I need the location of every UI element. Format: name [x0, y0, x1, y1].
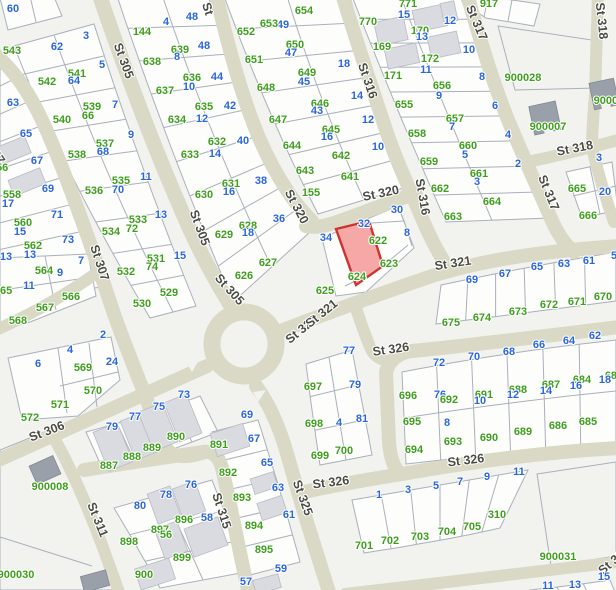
svg-text:73: 73 [62, 234, 74, 246]
svg-text:543: 543 [3, 45, 21, 57]
svg-text:38: 38 [255, 175, 267, 187]
svg-text:3: 3 [405, 484, 411, 496]
svg-text:642: 642 [332, 150, 350, 162]
svg-text:11: 11 [23, 280, 35, 292]
svg-text:13: 13 [155, 209, 167, 221]
svg-text:8: 8 [479, 71, 485, 83]
svg-text:30: 30 [391, 204, 403, 216]
svg-text:44: 44 [211, 71, 224, 83]
svg-text:705: 705 [463, 521, 481, 533]
svg-text:9: 9 [128, 129, 134, 141]
svg-text:12: 12 [444, 15, 456, 27]
svg-text:665: 665 [568, 183, 586, 195]
svg-text:692: 692 [440, 394, 458, 406]
svg-text:565: 565 [0, 285, 12, 297]
svg-text:8: 8 [404, 227, 410, 239]
svg-text:664: 664 [483, 196, 502, 208]
svg-text:15: 15 [398, 9, 410, 21]
svg-text:629: 629 [215, 229, 233, 241]
svg-text:15: 15 [174, 250, 186, 262]
svg-text:1: 1 [376, 489, 382, 501]
svg-text:69: 69 [241, 409, 253, 421]
svg-text:34: 34 [320, 232, 333, 244]
svg-text:641: 641 [341, 171, 359, 183]
svg-text:702: 702 [381, 535, 399, 547]
svg-text:18: 18 [242, 227, 254, 239]
svg-text:68: 68 [97, 146, 109, 158]
svg-text:13: 13 [24, 249, 36, 261]
svg-text:898: 898 [120, 536, 138, 548]
svg-text:5: 5 [99, 59, 105, 71]
svg-text:701: 701 [355, 540, 373, 552]
svg-text:7: 7 [449, 121, 455, 133]
svg-text:36: 36 [273, 213, 285, 225]
svg-text:889: 889 [143, 442, 161, 454]
svg-text:61: 61 [283, 509, 295, 521]
svg-text:633: 633 [181, 149, 199, 161]
svg-text:72: 72 [126, 223, 138, 235]
svg-text:674: 674 [473, 312, 492, 324]
svg-text:7: 7 [457, 476, 463, 488]
svg-text:2: 2 [100, 329, 106, 341]
svg-text:144: 144 [133, 26, 152, 38]
svg-text:8: 8 [444, 417, 450, 429]
svg-text:48: 48 [198, 40, 210, 52]
svg-text:638: 638 [143, 56, 161, 68]
svg-text:644: 644 [283, 140, 302, 152]
svg-text:622: 622 [369, 235, 387, 247]
svg-text:18: 18 [338, 58, 350, 70]
svg-text:690: 690 [480, 432, 498, 444]
svg-text:529: 529 [160, 287, 178, 299]
svg-text:67: 67 [499, 268, 511, 280]
svg-text:60: 60 [7, 3, 19, 15]
svg-text:32: 32 [358, 218, 370, 230]
svg-text:75: 75 [153, 401, 165, 413]
svg-text:10: 10 [474, 395, 486, 407]
svg-text:6: 6 [492, 100, 498, 112]
svg-text:73: 73 [178, 389, 190, 401]
svg-text:648: 648 [257, 82, 275, 94]
svg-text:675: 675 [442, 317, 460, 329]
svg-text:66: 66 [82, 110, 94, 122]
svg-text:13: 13 [0, 251, 12, 263]
svg-text:662: 662 [431, 183, 449, 195]
svg-text:556: 556 [0, 162, 8, 174]
svg-text:673: 673 [509, 306, 527, 318]
svg-text:693: 693 [444, 436, 462, 448]
svg-text:890: 890 [167, 431, 185, 443]
svg-text:63: 63 [558, 258, 570, 270]
svg-text:900028: 900028 [505, 72, 542, 84]
svg-text:896: 896 [175, 514, 193, 526]
svg-text:685: 685 [579, 416, 597, 428]
svg-text:670: 670 [594, 291, 612, 303]
svg-text:700: 700 [335, 445, 353, 457]
svg-text:3: 3 [83, 30, 89, 42]
svg-text:697: 697 [304, 381, 322, 393]
svg-text:567: 567 [36, 302, 54, 314]
svg-text:569: 569 [74, 362, 92, 374]
svg-text:70: 70 [468, 351, 480, 363]
svg-text:900030: 900030 [0, 569, 34, 581]
svg-text:634: 634 [168, 114, 187, 126]
svg-text:11: 11 [420, 64, 432, 76]
svg-text:624: 624 [348, 271, 367, 283]
svg-text:13: 13 [569, 579, 581, 590]
svg-text:3: 3 [596, 152, 602, 164]
svg-text:13: 13 [416, 31, 428, 43]
svg-text:623: 623 [380, 258, 398, 270]
svg-text:171: 171 [384, 70, 402, 82]
svg-text:155: 155 [302, 187, 320, 199]
svg-text:540: 540 [53, 114, 71, 126]
svg-text:81: 81 [356, 413, 368, 425]
svg-text:887: 887 [100, 460, 118, 472]
svg-text:66: 66 [533, 339, 545, 351]
svg-text:310: 310 [488, 509, 506, 521]
svg-text:625: 625 [316, 285, 334, 297]
svg-text:72: 72 [433, 357, 445, 369]
svg-text:16: 16 [223, 186, 235, 198]
svg-text:59: 59 [275, 563, 287, 575]
svg-text:627: 627 [259, 257, 277, 269]
svg-text:63: 63 [7, 97, 19, 109]
svg-text:686: 686 [549, 420, 567, 432]
svg-text:7: 7 [112, 99, 118, 111]
svg-text:64: 64 [563, 335, 576, 347]
svg-text:653: 653 [260, 18, 278, 30]
svg-text:572: 572 [21, 412, 39, 424]
svg-text:77: 77 [343, 345, 355, 357]
svg-text:62: 62 [51, 41, 63, 53]
svg-text:899: 899 [173, 552, 191, 564]
svg-text:24: 24 [106, 356, 119, 368]
svg-text:12: 12 [507, 389, 519, 401]
svg-text:71: 71 [51, 209, 63, 221]
svg-text:534: 534 [102, 226, 121, 238]
svg-text:20: 20 [599, 186, 611, 198]
svg-text:17: 17 [2, 198, 14, 210]
svg-text:900: 900 [135, 569, 153, 581]
svg-text:11: 11 [140, 171, 152, 183]
svg-text:58: 58 [201, 512, 213, 524]
svg-text:672: 672 [540, 299, 558, 311]
svg-text:74: 74 [146, 261, 159, 273]
svg-text:45: 45 [298, 76, 310, 88]
svg-text:694: 694 [405, 444, 424, 456]
svg-text:917: 917 [480, 0, 498, 10]
svg-text:770: 770 [359, 16, 377, 28]
svg-text:70: 70 [112, 184, 124, 196]
svg-text:4: 4 [163, 16, 170, 28]
svg-text:10: 10 [463, 44, 475, 56]
svg-text:637: 637 [156, 85, 174, 97]
svg-text:564: 564 [35, 265, 54, 277]
svg-text:632: 632 [208, 136, 226, 148]
svg-text:65: 65 [261, 457, 273, 469]
svg-text:900007: 900007 [530, 121, 567, 133]
svg-text:704: 704 [438, 526, 457, 538]
svg-text:4: 4 [505, 129, 512, 141]
svg-text:43: 43 [311, 105, 323, 117]
svg-text:695: 695 [403, 416, 421, 428]
svg-text:67: 67 [31, 155, 43, 167]
svg-text:10: 10 [372, 141, 384, 153]
svg-text:3: 3 [474, 176, 480, 188]
svg-text:12: 12 [196, 113, 208, 125]
svg-text:79: 79 [106, 421, 118, 433]
svg-text:76: 76 [185, 479, 197, 491]
svg-text:4: 4 [336, 417, 343, 429]
svg-text:69: 69 [42, 183, 54, 195]
svg-text:542: 542 [38, 76, 56, 88]
svg-text:659: 659 [420, 156, 438, 168]
svg-text:895: 895 [255, 544, 273, 556]
svg-text:48: 48 [186, 11, 198, 23]
svg-text:8: 8 [174, 51, 180, 63]
svg-text:9: 9 [436, 90, 442, 102]
svg-text:67: 67 [248, 433, 260, 445]
svg-text:5: 5 [462, 149, 468, 161]
svg-text:65: 65 [531, 261, 543, 273]
svg-text:62: 62 [589, 330, 601, 342]
svg-text:78: 78 [160, 489, 172, 501]
svg-text:891: 891 [210, 439, 228, 451]
svg-text:630: 630 [195, 189, 213, 201]
svg-text:61: 61 [583, 255, 595, 267]
svg-text:15: 15 [598, 571, 610, 583]
svg-text:14: 14 [540, 385, 553, 397]
svg-text:647: 647 [269, 114, 287, 126]
svg-text:16: 16 [570, 380, 582, 392]
svg-text:80: 80 [134, 500, 146, 512]
svg-text:7: 7 [78, 255, 84, 267]
svg-text:703: 703 [411, 531, 429, 543]
svg-text:699: 699 [311, 450, 329, 462]
svg-text:570: 570 [84, 385, 102, 397]
svg-text:5: 5 [433, 480, 439, 492]
svg-text:9: 9 [57, 267, 63, 279]
svg-text:900031: 900031 [540, 551, 577, 563]
svg-text:530: 530 [133, 298, 151, 310]
svg-text:571: 571 [51, 399, 69, 411]
svg-text:635: 635 [195, 101, 213, 113]
svg-text:11: 11 [513, 466, 525, 478]
svg-text:6: 6 [35, 358, 41, 370]
svg-text:900008: 900008 [32, 481, 69, 493]
svg-text:169: 169 [373, 41, 391, 53]
svg-text:10: 10 [183, 81, 195, 93]
svg-text:15: 15 [14, 226, 26, 238]
svg-text:57: 57 [240, 576, 252, 588]
svg-text:18: 18 [599, 374, 611, 386]
svg-text:56: 56 [160, 529, 172, 541]
svg-text:65: 65 [20, 128, 32, 140]
svg-text:77: 77 [129, 411, 141, 423]
svg-text:643: 643 [296, 165, 314, 177]
svg-text:42: 42 [224, 100, 236, 112]
svg-text:47: 47 [285, 47, 297, 59]
svg-text:532: 532 [117, 266, 135, 278]
svg-text:49: 49 [277, 19, 289, 31]
svg-text:654: 654 [295, 5, 314, 17]
svg-text:4: 4 [67, 344, 74, 356]
svg-text:14: 14 [209, 148, 222, 160]
svg-text:671: 671 [568, 296, 586, 308]
svg-text:655: 655 [395, 99, 413, 111]
svg-text:652: 652 [237, 26, 255, 38]
svg-text:5: 5 [611, 250, 616, 262]
svg-text:2: 2 [515, 158, 521, 170]
svg-text:888: 888 [123, 451, 141, 463]
svg-text:900003: 900003 [594, 95, 616, 107]
svg-text:64: 64 [68, 75, 81, 87]
svg-text:16: 16 [321, 131, 333, 143]
svg-text:651: 651 [245, 54, 263, 66]
svg-text:538: 538 [68, 149, 86, 161]
svg-text:69: 69 [466, 274, 478, 286]
svg-text:566: 566 [62, 291, 80, 303]
svg-text:689: 689 [514, 426, 532, 438]
svg-text:536: 536 [85, 185, 103, 197]
svg-text:11: 11 [542, 580, 554, 590]
svg-text:79: 79 [349, 379, 361, 391]
svg-text:666: 666 [579, 210, 597, 222]
svg-text:698: 698 [305, 418, 323, 430]
svg-text:658: 658 [408, 128, 426, 140]
svg-text:626: 626 [235, 270, 253, 282]
svg-text:893: 893 [233, 492, 251, 504]
svg-text:68: 68 [503, 346, 515, 358]
svg-text:63: 63 [272, 482, 284, 494]
svg-text:14: 14 [351, 90, 364, 102]
svg-text:40: 40 [237, 135, 249, 147]
svg-text:892: 892 [219, 467, 237, 479]
svg-text:9: 9 [484, 471, 490, 483]
svg-text:696: 696 [399, 390, 417, 402]
svg-text:663: 663 [444, 211, 462, 223]
svg-text:568: 568 [9, 315, 27, 327]
svg-text:894: 894 [245, 520, 264, 532]
svg-text:12: 12 [362, 114, 374, 126]
